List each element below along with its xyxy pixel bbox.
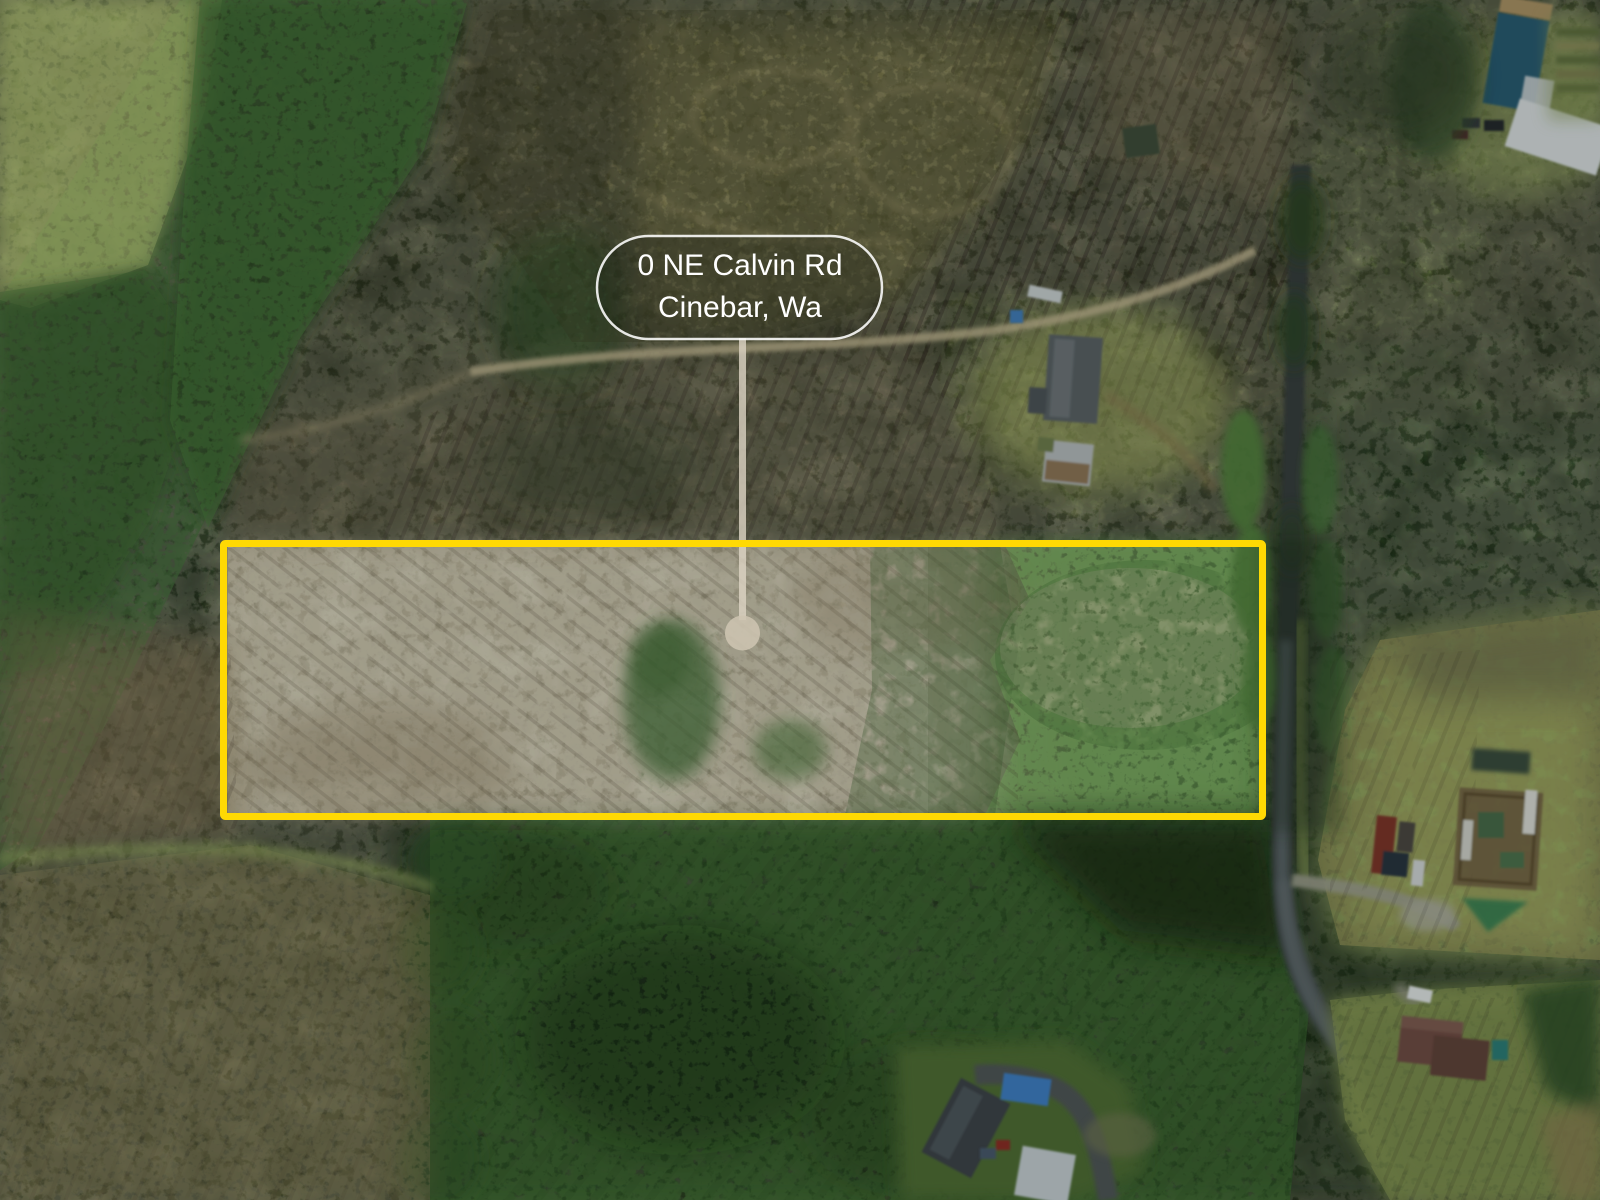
- svg-text:0 NE Calvin Rd: 0 NE Calvin Rd: [637, 249, 842, 282]
- svg-text:Cinebar, Wa: Cinebar, Wa: [658, 291, 822, 324]
